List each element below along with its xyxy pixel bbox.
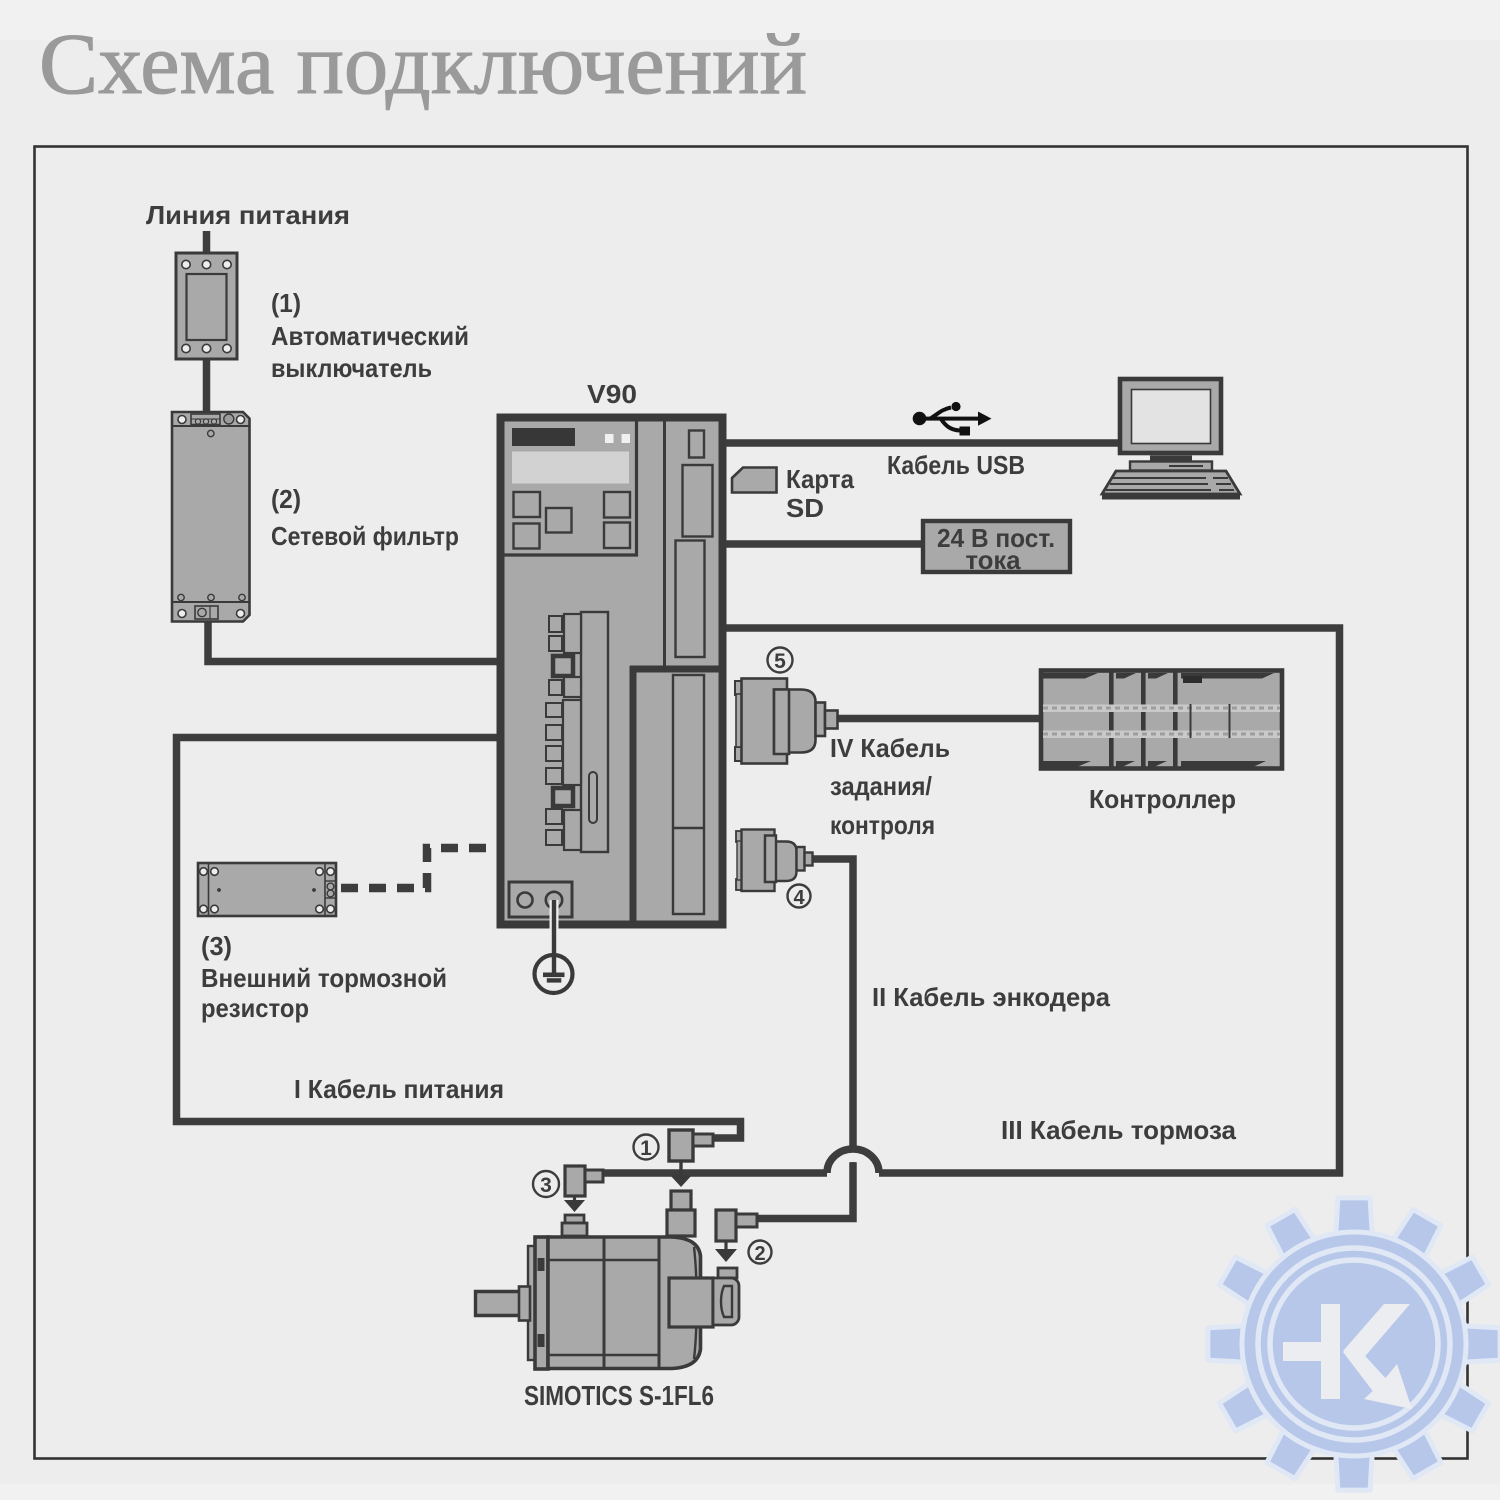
svg-text:выключатель: выключатель — [271, 353, 432, 383]
svg-text:Внешний тормозной: Внешний тормозной — [201, 963, 447, 993]
svg-text:(2): (2) — [271, 484, 301, 514]
svg-text:Автоматический: Автоматический — [271, 321, 469, 351]
svg-text:5: 5 — [774, 650, 786, 673]
svg-text:I Кабель питания: I Кабель питания — [294, 1074, 504, 1104]
svg-text:(3): (3) — [201, 931, 232, 961]
svg-text:Контроллер: Контроллер — [1089, 784, 1236, 814]
svg-text:II Кабель энкодера: II Кабель энкодера — [872, 982, 1111, 1012]
svg-text:(1): (1) — [271, 288, 301, 318]
svg-text:2: 2 — [754, 1243, 765, 1265]
svg-text:SIMOTICS S-1FL6: SIMOTICS S-1FL6 — [524, 1380, 714, 1411]
svg-text:IV Кабель: IV Кабель — [830, 733, 950, 763]
svg-text:Схема подключений: Схема подключений — [39, 15, 807, 112]
svg-text:контроля: контроля — [830, 810, 935, 840]
svg-text:1: 1 — [640, 1137, 652, 1160]
svg-text:V90: V90 — [587, 379, 637, 409]
svg-text:4: 4 — [793, 887, 805, 909]
svg-text:3: 3 — [540, 1174, 552, 1197]
svg-text:III Кабель тормоза: III Кабель тормоза — [1001, 1115, 1237, 1145]
svg-text:Кабель USB: Кабель USB — [887, 450, 1025, 480]
svg-text:задания/: задания/ — [830, 771, 932, 801]
svg-text:тока: тока — [966, 545, 1022, 575]
svg-text:резистор: резистор — [201, 993, 309, 1023]
svg-text:Линия питания: Линия питания — [146, 200, 350, 230]
svg-text:Карта: Карта — [786, 464, 854, 494]
svg-text:SD: SD — [786, 493, 824, 523]
svg-text:Сетевой фильтр: Сетевой фильтр — [271, 521, 459, 551]
